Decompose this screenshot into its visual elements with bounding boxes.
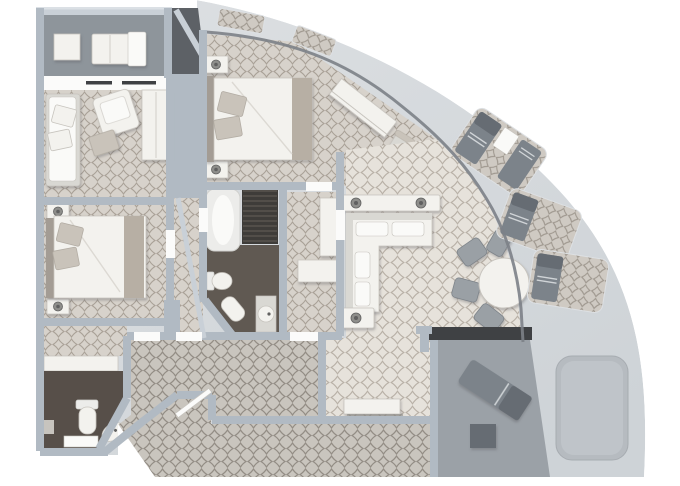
shower	[242, 186, 278, 244]
background-bottom-strip	[0, 477, 680, 486]
room-bathroom-2	[44, 324, 127, 449]
closet-shelving	[320, 198, 338, 256]
room-forward-veranda	[36, 7, 172, 92]
side-console	[342, 308, 374, 328]
veranda-side-table	[54, 34, 80, 60]
door-opening	[336, 210, 345, 240]
bed-runner	[292, 78, 312, 160]
bedroom2-nightstand	[47, 299, 69, 314]
deck-door-header	[428, 327, 532, 340]
deck-floor	[436, 340, 550, 477]
masterbath-sink	[256, 296, 276, 332]
bath2-lobby-carpet	[44, 324, 127, 356]
background-below-bath	[36, 455, 118, 478]
deck-wall-stub	[420, 334, 429, 352]
bed-runner	[124, 216, 144, 298]
headboard	[46, 218, 54, 298]
sitting-sofa	[46, 94, 80, 186]
sitting-wardrobe	[142, 90, 170, 160]
door-opening	[134, 332, 160, 341]
sliding-door-track	[86, 81, 112, 85]
background-top-strip	[0, 0, 197, 8]
bath2-step	[64, 436, 98, 447]
veranda-railing-edge	[36, 7, 172, 10]
bed-pillow	[53, 247, 80, 270]
bath2-toilet	[76, 400, 98, 434]
door-opening	[176, 332, 202, 341]
floor-plan	[0, 0, 680, 486]
bedroom2-bed	[46, 216, 146, 298]
master-bed	[205, 76, 312, 162]
sliding-door-track	[122, 81, 156, 85]
deck-wall-stub	[416, 326, 432, 334]
closet-shelf-unit	[298, 260, 338, 282]
room-bedroom-2	[44, 203, 170, 322]
bath2-wall-fixture	[44, 420, 54, 434]
bed-pillow	[213, 116, 242, 140]
balcony-recess	[526, 248, 610, 313]
credenza	[344, 399, 403, 418]
masterbath-toilet	[207, 272, 232, 290]
veranda-sun-bed	[92, 32, 146, 66]
door-opening	[290, 332, 318, 341]
room-sitting	[44, 88, 170, 201]
door-opening	[166, 230, 175, 258]
door-opening	[199, 208, 208, 232]
deck-side-table	[470, 424, 496, 448]
table-lamp	[351, 198, 361, 208]
spa-pad	[556, 356, 628, 460]
bath2-vanity-counter	[44, 356, 118, 371]
sofa-console-table	[342, 195, 440, 211]
master-nightstand	[204, 56, 228, 73]
floor-plan-canvas	[0, 0, 680, 486]
master-nightstand	[204, 161, 228, 178]
room-walk-in-closet	[287, 192, 338, 336]
bathtub	[206, 189, 240, 251]
table-lamp	[416, 198, 426, 208]
door-opening	[306, 182, 332, 191]
